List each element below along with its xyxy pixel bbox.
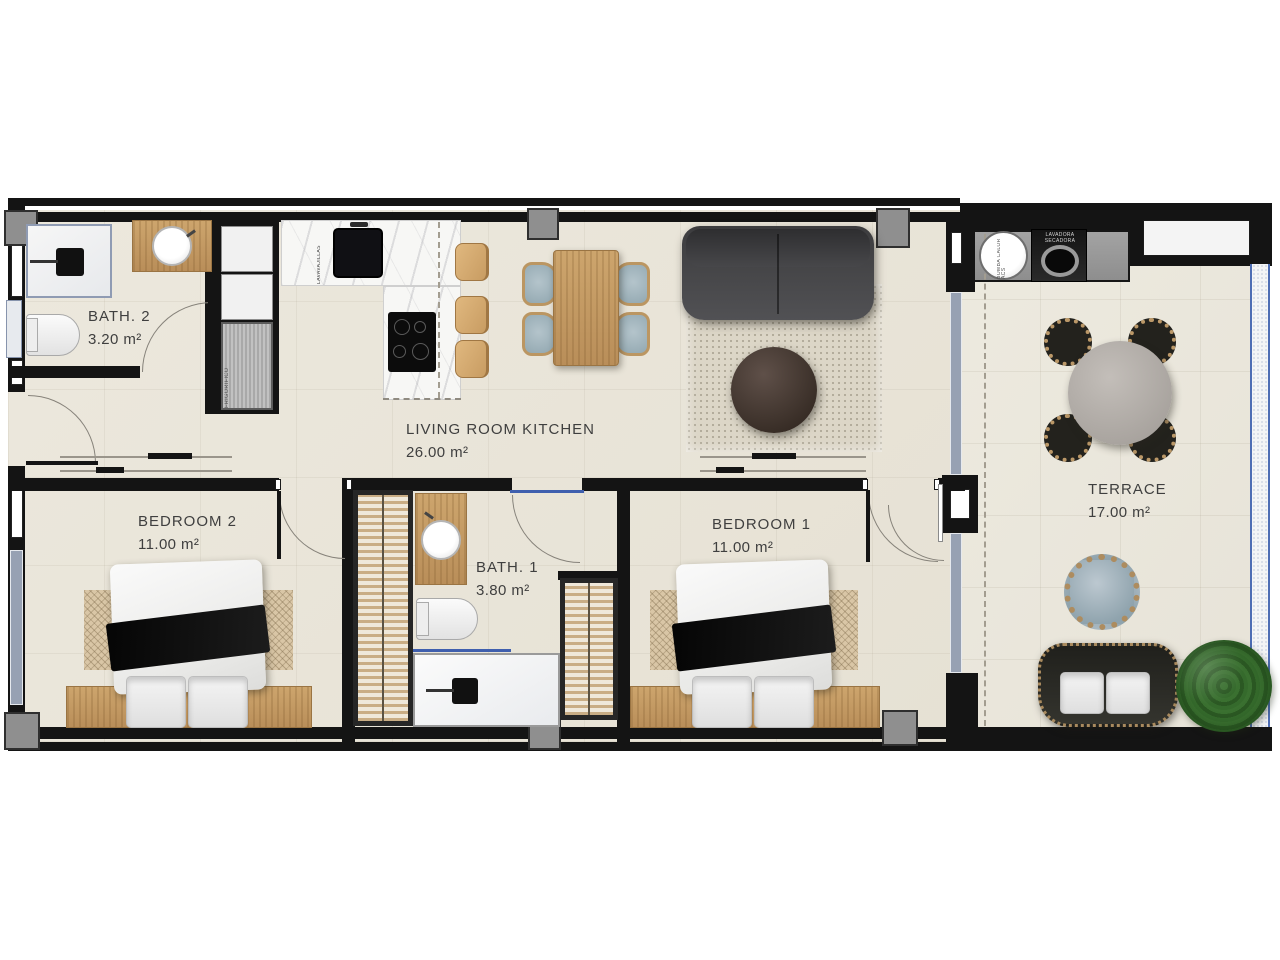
- terrace-name: TERRACE: [1088, 481, 1167, 498]
- hob-burner-2: [414, 321, 426, 333]
- bath1-door-header: [510, 490, 584, 493]
- bedroom2-pillow-right: [188, 676, 248, 728]
- terrace-door-leaf: [938, 484, 943, 542]
- counter-overhang-dash-h: [383, 398, 461, 400]
- terrace-label: TERRACE 17.00 m²: [1088, 478, 1167, 525]
- terrace-sofa-cushion-left: [1060, 672, 1104, 714]
- bedroom2-door-leaf: [277, 491, 281, 559]
- floor-plan: BOMBA CALOR ACS LAVADORA SECADORA BATH. …: [0, 0, 1280, 960]
- terrace-sofa-cushion-right: [1106, 672, 1150, 714]
- bottom-wall-inner: [8, 727, 965, 739]
- bedroom2-pillow-left: [126, 676, 186, 728]
- bedroom2-area: 11.00 m²: [138, 533, 237, 556]
- wardrobe-bedroom2-divider: [382, 495, 384, 721]
- bath1-name: BATH. 1: [476, 559, 539, 576]
- bar-stool-1: [455, 243, 489, 281]
- beam-mark-bedroom2-a: [60, 456, 232, 458]
- living-area: 26.00 m²: [406, 441, 595, 464]
- terrace-top-window: [1143, 220, 1250, 256]
- bar-stool-3: [455, 340, 489, 378]
- terrace-area: 17.00 m²: [1088, 501, 1167, 524]
- bedroom1-name: BEDROOM 1: [712, 516, 811, 533]
- top-wall-outer: [8, 198, 960, 206]
- partition-pillar-window: [950, 489, 970, 519]
- wall-bath1-bedroom1: [617, 478, 630, 742]
- kitchen-cabinet-1: [221, 226, 273, 272]
- heat-pump: BOMBA CALOR ACS: [979, 231, 1028, 280]
- pillar-bottom-left: [4, 712, 40, 750]
- beam-dash-bedroom1-b: [716, 467, 744, 473]
- toilet-tank-bath2: [26, 318, 38, 352]
- washer-dryer-label: LAVADORA SECADORA: [1034, 232, 1086, 244]
- bedroom1-area: 11.00 m²: [712, 536, 811, 559]
- terrace-table: [1068, 341, 1172, 445]
- sofa-seat-divider: [777, 234, 779, 314]
- fridge: FRIGORIFICO: [221, 322, 273, 410]
- terrace-pouf: [1064, 554, 1140, 630]
- bar-stool-2: [455, 296, 489, 334]
- terrace-plant: [1176, 640, 1272, 732]
- terrace-glazing-upper: [950, 292, 962, 475]
- hob-burner-1: [394, 319, 410, 335]
- beam-dash-bedroom1-a: [752, 453, 796, 459]
- shower-screen-bath1: [413, 649, 511, 652]
- pillar-top-right: [876, 208, 910, 248]
- bottom-wall-outer: [8, 742, 965, 751]
- bath2-partition-wall: [8, 366, 140, 378]
- wardrobe-bedroom1-divider: [588, 583, 590, 715]
- counter-overhang-dash-v: [438, 222, 440, 398]
- pillar-bottom-right: [882, 710, 918, 746]
- shower-arm-bath1: [426, 689, 454, 692]
- washer-drum: [1041, 245, 1079, 277]
- bedroom1-pillow-right: [754, 676, 814, 728]
- dining-chair-3: [614, 262, 650, 306]
- jamb-bedroom2-r: [346, 479, 352, 490]
- pillar-top-center: [527, 208, 559, 240]
- fridge-label: FRIGORIFICO: [225, 330, 231, 408]
- shower-arm-bath2: [30, 260, 58, 263]
- beam-dash-bedroom2-b: [96, 467, 124, 473]
- toilet-tank-bath1: [416, 602, 429, 636]
- basin-bath1: [421, 520, 461, 560]
- bath1-label: BATH. 1 3.80 m²: [476, 556, 539, 603]
- bedroom2-name: BEDROOM 2: [138, 513, 237, 530]
- entry-door-leaf: [26, 461, 98, 465]
- kitchen-faucet: [350, 222, 368, 227]
- heat-pump-label: BOMBA CALOR ACS: [997, 235, 1007, 279]
- beam-mark-bedroom2-b: [60, 470, 232, 472]
- partition-top-window: [951, 232, 962, 264]
- living-label: LIVING ROOM KITCHEN 26.00 m²: [406, 418, 595, 465]
- window-bath2-b: [6, 300, 22, 358]
- dining-table: [553, 250, 619, 366]
- dishwasher-label: LAVAVAJILLAS: [317, 226, 322, 284]
- mid-wall-bedroom2: [8, 478, 279, 491]
- sofa: [682, 226, 874, 320]
- terrace-glazing-lower: [950, 533, 962, 673]
- window-bedroom2-glazing: [10, 550, 23, 705]
- partition-bottom-block: [946, 673, 978, 751]
- bath2-door-leaf: [208, 302, 212, 372]
- induction-hob: [388, 312, 436, 372]
- jamb-bedroom2-l: [275, 479, 281, 490]
- hob-burner-3: [393, 345, 406, 358]
- mid-wall-bedroom1: [630, 478, 867, 491]
- wardrobe-bedroom2: [353, 490, 413, 726]
- bedroom1-label: BEDROOM 1 11.00 m²: [712, 513, 811, 560]
- kitchen-sink: [333, 228, 383, 278]
- bedroom1-door-leaf: [866, 490, 870, 562]
- jamb-bedroom1-l: [862, 479, 868, 490]
- shower-fixture-bath2: [56, 248, 84, 276]
- basin-bath2: [152, 226, 192, 266]
- bath2-label: BATH. 2 3.20 m²: [88, 305, 151, 352]
- washer-dryer: LAVADORA SECADORA: [1031, 229, 1087, 282]
- shower-fixture-bath1: [452, 678, 478, 704]
- window-bath2-a: [11, 243, 23, 297]
- kitchen-cabinet-2: [221, 274, 273, 320]
- bath2-area: 3.20 m²: [88, 328, 151, 351]
- beam-dash-bedroom2-a: [148, 453, 192, 459]
- living-name: LIVING ROOM KITCHEN: [406, 421, 595, 438]
- wardrobe-bedroom1: [560, 578, 618, 720]
- bedroom2-label: BEDROOM 2 11.00 m²: [138, 510, 237, 557]
- bath2-name: BATH. 2: [88, 308, 151, 325]
- hob-burner-4: [412, 343, 429, 360]
- bath1-area: 3.80 m²: [476, 579, 539, 602]
- dining-chair-4: [614, 312, 650, 356]
- bedroom1-pillow-left: [692, 676, 752, 728]
- terrace-dashed-line: [984, 234, 986, 726]
- coffee-table: [731, 347, 817, 433]
